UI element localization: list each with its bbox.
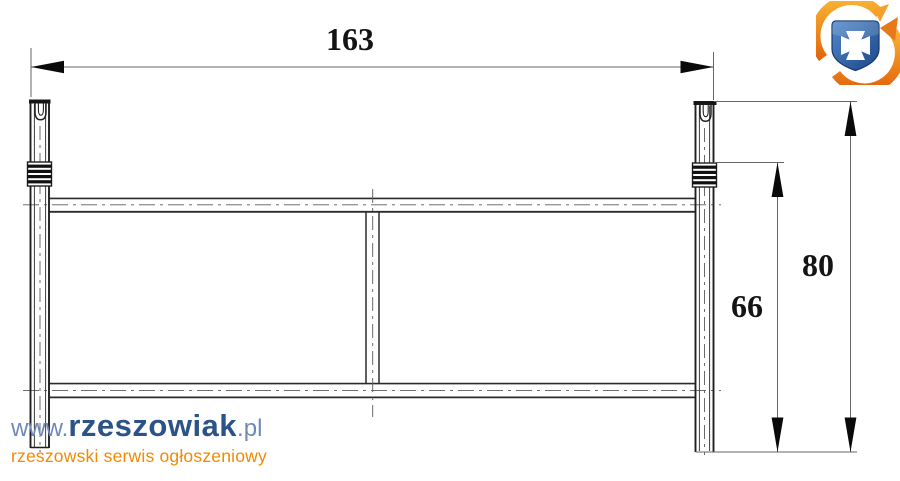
left-post-spigot: [35, 103, 46, 120]
top-rail: [23, 198, 721, 211]
center-brace: [366, 189, 379, 417]
right-post-top-cap: [694, 101, 717, 105]
watermark-brand: rzeszowiak: [68, 411, 237, 441]
dimension-width-value: 163: [308, 23, 392, 55]
arrowhead-up: [772, 163, 784, 198]
arrowhead-up: [845, 102, 857, 137]
rzeszowiak-logo: [816, 1, 900, 85]
left-post-collar: [28, 162, 52, 186]
right-post: [693, 101, 717, 455]
watermark-www: www.: [11, 414, 68, 444]
arrowhead-right: [681, 61, 714, 73]
rzeszow-crest-icon: [816, 1, 900, 85]
dimension-total-height-value: 80: [789, 249, 847, 281]
watermark-tld: .pl: [237, 414, 262, 444]
crest-shield: [832, 21, 879, 71]
left-post: [28, 100, 52, 453]
watermark-tagline: rzeszowski serwis ogłoszeniowy: [11, 446, 267, 467]
site-watermark: www.rzeszowiak.pl rzeszowski serwis ogło…: [11, 411, 267, 467]
technical-drawing-page: 163 80 66 www.rzeszowiak.pl rzeszowski s…: [0, 0, 900, 481]
arrowhead-left: [31, 61, 64, 73]
bottom-rail: [23, 384, 721, 398]
dimension-collar-height-value: 66: [718, 290, 776, 322]
arrowhead-down: [845, 418, 857, 453]
arrowhead-down: [772, 418, 784, 453]
left-post-top-cap: [29, 100, 51, 104]
arrow-tip-right: [880, 17, 898, 41]
right-post-collar: [693, 163, 717, 187]
watermark-url: www.rzeszowiak.pl: [11, 411, 267, 444]
